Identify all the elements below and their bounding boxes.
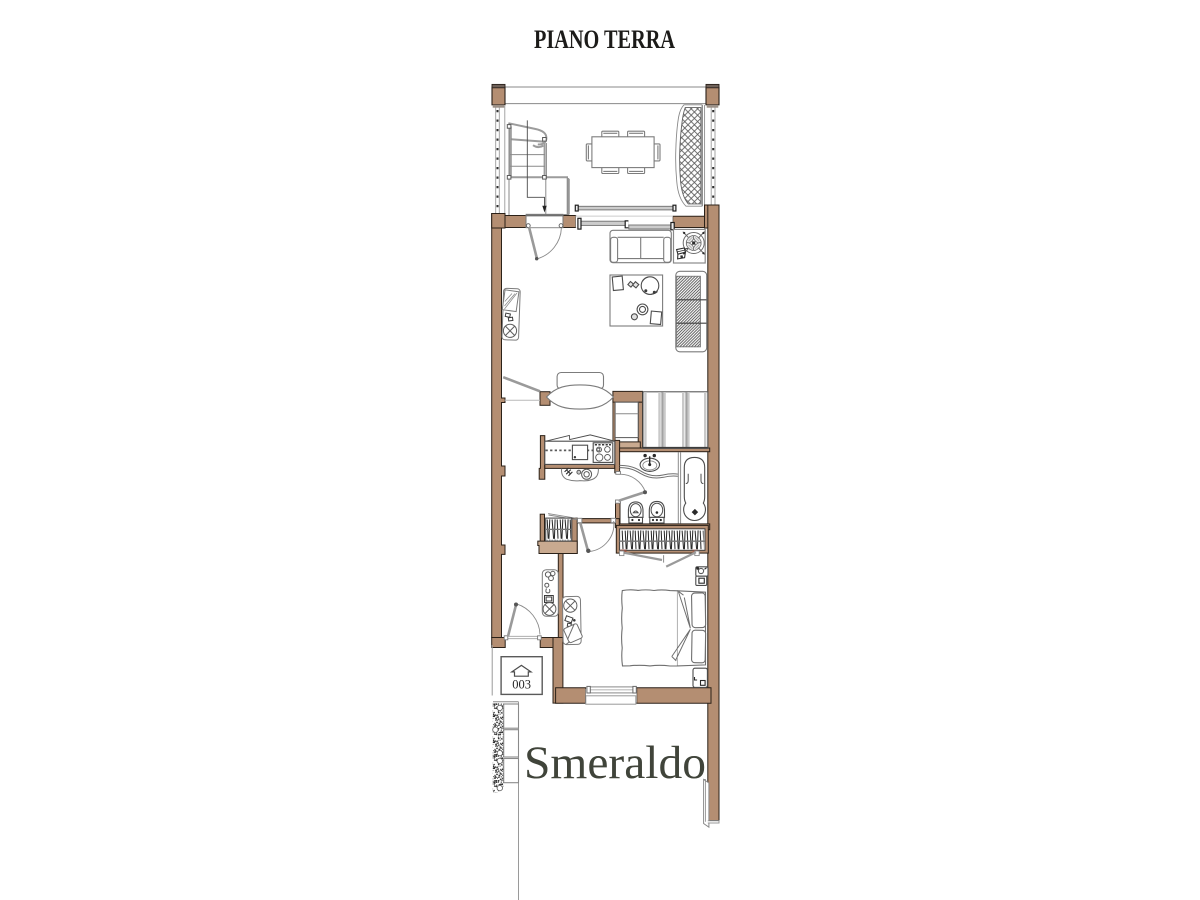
svg-text:Smeraldo: Smeraldo <box>524 737 706 789</box>
svg-text:PIANO TERRA: PIANO TERRA <box>534 25 675 54</box>
svg-text:003: 003 <box>512 678 531 692</box>
